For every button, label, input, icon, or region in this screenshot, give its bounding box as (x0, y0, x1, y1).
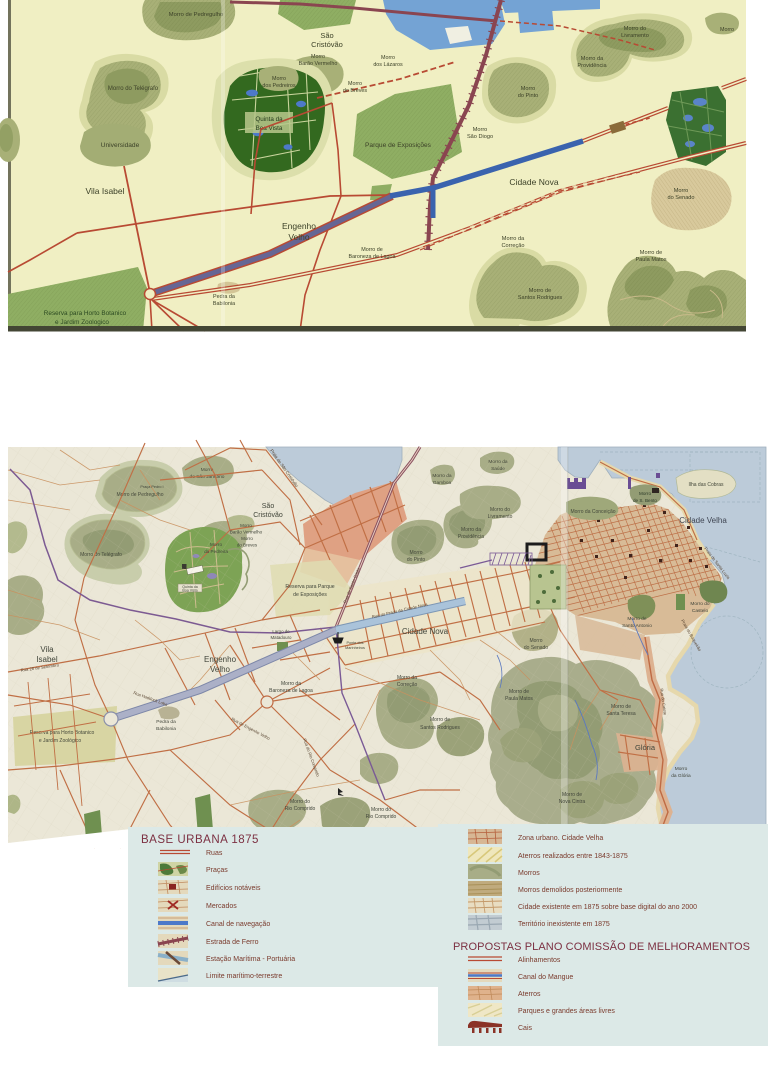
svg-text:São: São (320, 31, 333, 40)
svg-text:do Breves: do Breves (237, 543, 258, 548)
svg-text:Castelo: Castelo (692, 608, 709, 614)
svg-text:Cidade Nova: Cidade Nova (509, 177, 558, 187)
svg-text:Aterros: Aterros (518, 991, 541, 998)
svg-text:dos Pedreiros: dos Pedreiros (262, 83, 296, 89)
svg-text:Baroneza de Lagoa: Baroneza de Lagoa (348, 254, 395, 260)
svg-text:Morro: Morro (348, 81, 362, 87)
svg-text:Vila Isabel: Vila Isabel (85, 186, 124, 196)
svg-text:Morro de: Morro de (361, 247, 383, 253)
svg-text:de S. Bento: de S. Bento (633, 498, 657, 503)
svg-text:Santo Antonio: Santo Antonio (622, 623, 652, 629)
svg-text:Aterros realizados entre 1843-: Aterros realizados entre 1843-1875 (518, 853, 628, 860)
svg-text:Cidade existente em 1875 sobre: Cidade existente em 1875 sobre base digi… (518, 904, 697, 911)
svg-text:do Senado: do Senado (667, 195, 694, 201)
svg-text:Santos Rodrigues: Santos Rodrigues (420, 725, 460, 731)
svg-text:Morro do: Morro do (690, 601, 710, 607)
svg-text:Morro: Morro (521, 86, 536, 92)
svg-text:Morro: Morro (272, 76, 286, 82)
svg-text:Babilonia: Babilonia (156, 726, 176, 732)
svg-text:Correção: Correção (397, 682, 418, 688)
svg-text:Morro da Conceição: Morro da Conceição (570, 509, 615, 515)
svg-text:Cidade Nova: Cidade Nova (402, 627, 449, 636)
svg-text:Cristóvão: Cristóvão (253, 512, 283, 519)
svg-text:Rio Comprido: Rio Comprido (366, 814, 397, 820)
svg-text:Morro: Morro (675, 766, 688, 772)
svg-text:Morro de: Morro de (430, 717, 450, 723)
svg-text:Morro de: Morro de (627, 616, 647, 622)
svg-text:Rio Comprido: Rio Comprido (285, 806, 316, 812)
svg-text:do Breves: do Breves (343, 88, 368, 94)
svg-text:Engenho: Engenho (282, 221, 316, 231)
svg-text:Reserva para Horto Botanico: Reserva para Horto Botanico (30, 730, 95, 736)
svg-text:Morro: Morro (381, 55, 395, 61)
svg-text:Ruas: Ruas (206, 850, 223, 857)
svg-text:Cais: Cais (518, 1025, 533, 1032)
svg-text:e Jardim Zoológico: e Jardim Zoológico (39, 738, 81, 744)
svg-text:Morro de: Morro de (611, 704, 631, 710)
svg-text:Engenho: Engenho (204, 655, 237, 664)
svg-text:Baroneza de Lagoa: Baroneza de Lagoa (269, 688, 313, 694)
svg-text:da Pedreira: da Pedreira (204, 549, 228, 554)
svg-text:Morro: Morro (210, 542, 222, 547)
svg-text:Praças: Praças (206, 867, 228, 874)
svg-text:Barão Vermelho: Barão Vermelho (299, 61, 338, 67)
svg-text:Morros demolidos posteriorment: Morros demolidos posteriormente (518, 887, 622, 894)
svg-text:Universidade: Universidade (101, 142, 140, 149)
svg-text:Vila: Vila (40, 645, 54, 654)
svg-text:Morro de: Morro de (562, 792, 582, 798)
svg-text:Marinheiros: Marinheiros (345, 646, 365, 650)
svg-text:Alinhamentos: Alinhamentos (518, 957, 561, 964)
svg-text:Morros: Morros (518, 870, 540, 877)
svg-text:Reserva para Parque: Reserva para Parque (285, 584, 334, 590)
svg-text:Ilha das Cobras: Ilha das Cobras (688, 482, 724, 488)
svg-text:e Jardim Zoologico: e Jardim Zoologico (55, 319, 109, 326)
svg-text:Correção: Correção (501, 243, 524, 249)
svg-text:Morro: Morro (240, 523, 252, 528)
svg-text:Velho: Velho (288, 232, 310, 242)
svg-text:Morro de: Morro de (529, 288, 551, 294)
svg-text:Morro: Morro (241, 536, 253, 541)
svg-text:do Pinto: do Pinto (518, 93, 539, 99)
svg-text:Matadouro: Matadouro (271, 635, 293, 640)
svg-text:Morro: Morro (674, 188, 689, 194)
svg-text:Glória: Glória (635, 743, 656, 752)
svg-text:Barão Vermelho: Barão Vermelho (230, 530, 263, 535)
svg-text:de Exposições: de Exposições (293, 592, 327, 598)
svg-text:Morro da: Morro da (281, 681, 301, 687)
svg-text:dos Lázaros: dos Lázaros (373, 62, 403, 68)
svg-text:Morro de: Morro de (640, 250, 662, 256)
svg-text:PROPOSTAS PLANO COMISSÃO DE ME: PROPOSTAS PLANO COMISSÃO DE MELHORAMENTO… (453, 940, 750, 953)
svg-text:Morro do: Morro do (624, 26, 646, 32)
svg-text:Reserva para Horto Botanico: Reserva para Horto Botanico (44, 310, 127, 317)
svg-text:Pedra da: Pedra da (156, 719, 176, 725)
svg-text:São: São (262, 503, 275, 510)
svg-text:Providência: Providência (577, 63, 607, 69)
svg-text:Zona urbano. Cidade Velha: Zona urbano. Cidade Velha (518, 835, 603, 842)
svg-text:Morro da: Morro da (502, 236, 525, 242)
svg-text:Morro do Telégrafo: Morro do Telégrafo (108, 86, 159, 92)
svg-text:Parques e grandes áreas livres: Parques e grandes áreas livres (518, 1008, 615, 1015)
svg-text:Cristóvão: Cristóvão (311, 40, 343, 49)
svg-text:Estrada de Ferro: Estrada de Ferro (206, 939, 259, 946)
svg-text:Ponte dos: Ponte dos (346, 641, 363, 645)
svg-text:Morro: Morro (720, 27, 734, 33)
svg-text:Parque de Exposições: Parque de Exposições (365, 142, 432, 149)
svg-text:Morro da: Morro da (397, 675, 417, 681)
svg-text:Morro: Morro (473, 127, 488, 133)
svg-text:Livramento: Livramento (621, 33, 649, 39)
svg-text:Limite marítimo-terrestre: Limite marítimo-terrestre (206, 973, 282, 980)
svg-text:Morro: Morro (639, 491, 651, 496)
svg-text:Mercados: Mercados (206, 903, 237, 910)
svg-text:Largo de: Largo de (272, 629, 290, 634)
svg-text:Paula Matos: Paula Matos (635, 257, 666, 263)
svg-text:Canal de navegação: Canal de navegação (206, 921, 270, 928)
svg-text:Morro do: Morro do (371, 807, 391, 813)
svg-text:Território inexistente em 1875: Território inexistente em 1875 (518, 921, 610, 928)
svg-text:Nova Cintra: Nova Cintra (559, 799, 586, 805)
svg-text:Morro da: Morro da (581, 56, 604, 62)
svg-text:Morro do: Morro do (290, 799, 310, 805)
svg-text:Edifícios notáveis: Edifícios notáveis (206, 885, 261, 892)
svg-text:Morro de Pedregulho: Morro de Pedregulho (169, 12, 223, 18)
svg-text:Santa Teresa: Santa Teresa (606, 711, 636, 717)
svg-text:Morro: Morro (311, 54, 325, 60)
svg-text:Velho: Velho (210, 665, 231, 674)
svg-text:BASE URBANA 1875: BASE URBANA 1875 (141, 834, 259, 846)
svg-text:Morro de: Morro de (509, 689, 529, 695)
svg-text:Cidade Velha: Cidade Velha (679, 516, 727, 525)
svg-text:São Diogo: São Diogo (467, 134, 493, 140)
svg-text:Paula Matos: Paula Matos (505, 696, 533, 702)
svg-text:Santos Rodrigues: Santos Rodrigues (518, 295, 563, 301)
svg-text:Praça Pedro I: Praça Pedro I (140, 485, 163, 489)
svg-text:Estação Marítima - Portuária: Estação Marítima - Portuária (206, 956, 295, 963)
svg-text:da Glória: da Glória (671, 773, 691, 779)
svg-text:Canal do Mangue: Canal do Mangue (518, 974, 573, 981)
